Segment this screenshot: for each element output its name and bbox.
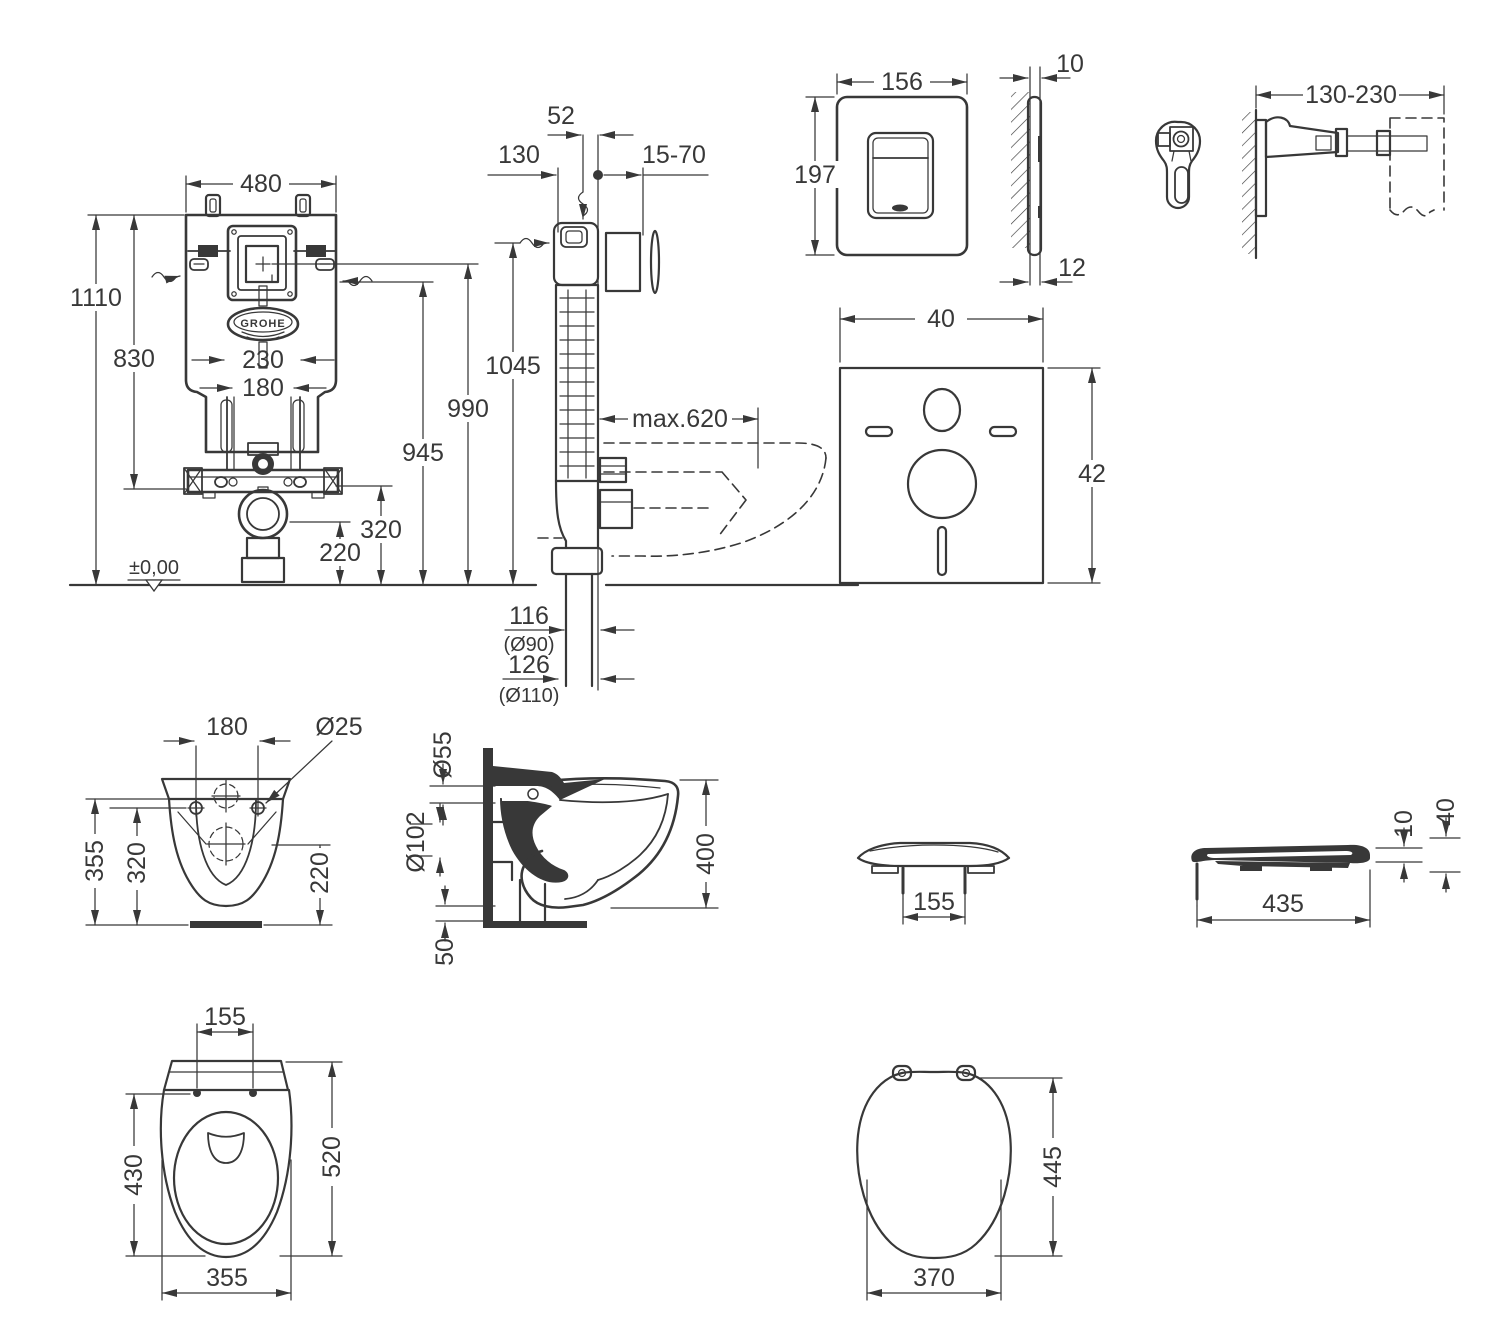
threaded-rod	[1347, 136, 1427, 151]
dim-830: 830	[113, 345, 155, 373]
dim-197: 197	[794, 161, 836, 189]
inspection-window	[228, 226, 296, 300]
flush-shelf	[208, 1133, 244, 1163]
outlet-bend-collar	[552, 548, 602, 574]
sound-insulation-pad: 40 42	[840, 305, 1118, 583]
dim-435: 435	[1262, 890, 1304, 918]
dimensions-seat-front: 155	[903, 888, 965, 924]
dim-990: 990	[447, 395, 489, 423]
water-inlet-arrow	[579, 192, 588, 219]
cistern-frame-front-view: GROHE 480	[62, 170, 549, 591]
dim-40-seat: 40	[1432, 798, 1460, 826]
dim-52: 52	[547, 102, 575, 130]
flush-plate-front-view: 156 197	[787, 68, 967, 255]
seat-front-view: 155	[858, 843, 1009, 924]
dim-155-top: 155	[204, 1003, 246, 1031]
technical-drawing-sheet: GROHE 480	[0, 0, 1500, 1328]
bowl-rear-view: 180 Ø25 355 320 220	[81, 713, 363, 928]
dim-1110: 1110	[70, 284, 122, 312]
dim-430: 430	[120, 1154, 148, 1196]
dim-15-70: 15-70	[642, 141, 706, 169]
wall-bracket-side-view: 130-230	[1242, 81, 1444, 258]
dim-945: 945	[402, 439, 444, 467]
dim-180-holes: 180	[206, 713, 248, 741]
dim-116: 116	[509, 602, 549, 630]
dim-126: 126	[508, 651, 550, 679]
plate-logo-mark	[892, 205, 908, 212]
dim-130: 130	[498, 141, 540, 169]
wall-section	[483, 748, 493, 927]
dim-130-230: 130-230	[1305, 81, 1397, 109]
dimensions-bracket: 130-230	[1256, 81, 1444, 114]
water-supply-arrow-right	[343, 277, 372, 286]
dim-40: 40	[927, 305, 955, 333]
dashed-stud-outline	[1390, 118, 1444, 216]
trap-section	[500, 798, 568, 883]
dim-12: 12	[1058, 254, 1086, 282]
dim-155-pins: 155	[913, 888, 955, 916]
ground-level-label: ±0,00	[129, 557, 179, 579]
brand-text: GROHE	[240, 318, 285, 330]
wall-bracket-front-view	[1156, 122, 1200, 208]
dimensions-bowl-rear: 180 Ø25 355 320 220	[81, 713, 363, 925]
dimensions-cistern-front: 480 1110 830 230 180 220 320	[62, 170, 549, 591]
hinge-hole	[528, 789, 538, 799]
dim-445: 445	[1039, 1146, 1067, 1188]
wall-hatch	[1242, 112, 1256, 254]
dim-max620: max.620	[632, 405, 728, 433]
dim-10: 10	[1056, 50, 1084, 78]
squiggle-arrow	[520, 239, 549, 248]
dim-520: 520	[318, 1136, 346, 1178]
dim-320: 320	[123, 842, 151, 884]
dim-10-seat: 10	[1390, 810, 1418, 838]
dimensions-bowl-side: Ø55 Ø102 400 50	[402, 731, 720, 966]
dim-370: 370	[913, 1264, 955, 1292]
bowl-side-section: Ø55 Ø102 400 50	[402, 731, 720, 966]
dim-42: 42	[1078, 460, 1106, 488]
dim-220: 220	[319, 539, 361, 567]
adjustable-spacer	[606, 233, 640, 291]
bowl-top-view: 155 430 520 355	[120, 1003, 346, 1300]
seat-side-view: 435 10 40	[1191, 798, 1460, 927]
dim-156: 156	[881, 68, 923, 96]
floor-section	[483, 921, 587, 928]
seat-top-view: 445 370	[857, 1066, 1067, 1300]
dim-355: 355	[81, 840, 109, 882]
cistern-frame-side-view: 52 130 15-70 max.620 116 (Ø90) 126 (Ø110…	[488, 102, 858, 707]
dim-355-top: 355	[206, 1264, 248, 1292]
dim-230: 230	[242, 346, 284, 374]
dim-50: 50	[431, 938, 459, 966]
dim-220: 220	[306, 852, 334, 894]
dim-inlet-55: Ø55	[429, 731, 457, 778]
dim-400: 400	[692, 833, 720, 875]
dim-1045: 1045	[485, 352, 541, 380]
dim-480: 480	[240, 170, 282, 198]
dim-180: 180	[242, 374, 284, 402]
dim-outlet-102: Ø102	[402, 811, 430, 872]
dimensions-seat-top: 445 370	[867, 1078, 1067, 1300]
drawing-svg: GROHE 480	[0, 0, 1500, 1328]
wall-fixing-arrow-left	[152, 273, 180, 282]
dim-d110: (Ø110)	[499, 685, 560, 707]
dimensions-pad: 40 42	[840, 305, 1118, 583]
dim-320: 320	[360, 516, 402, 544]
protection-plate	[651, 231, 659, 293]
dim-hole-diameter: Ø25	[315, 713, 362, 741]
outlet-connector	[239, 487, 287, 582]
dimensions-cistern-side: 52 130 15-70 max.620 116 (Ø90) 126 (Ø110…	[488, 102, 758, 707]
flush-plate-side-view: 10 12	[1000, 50, 1086, 285]
dashed-bowl-outline	[538, 443, 826, 556]
